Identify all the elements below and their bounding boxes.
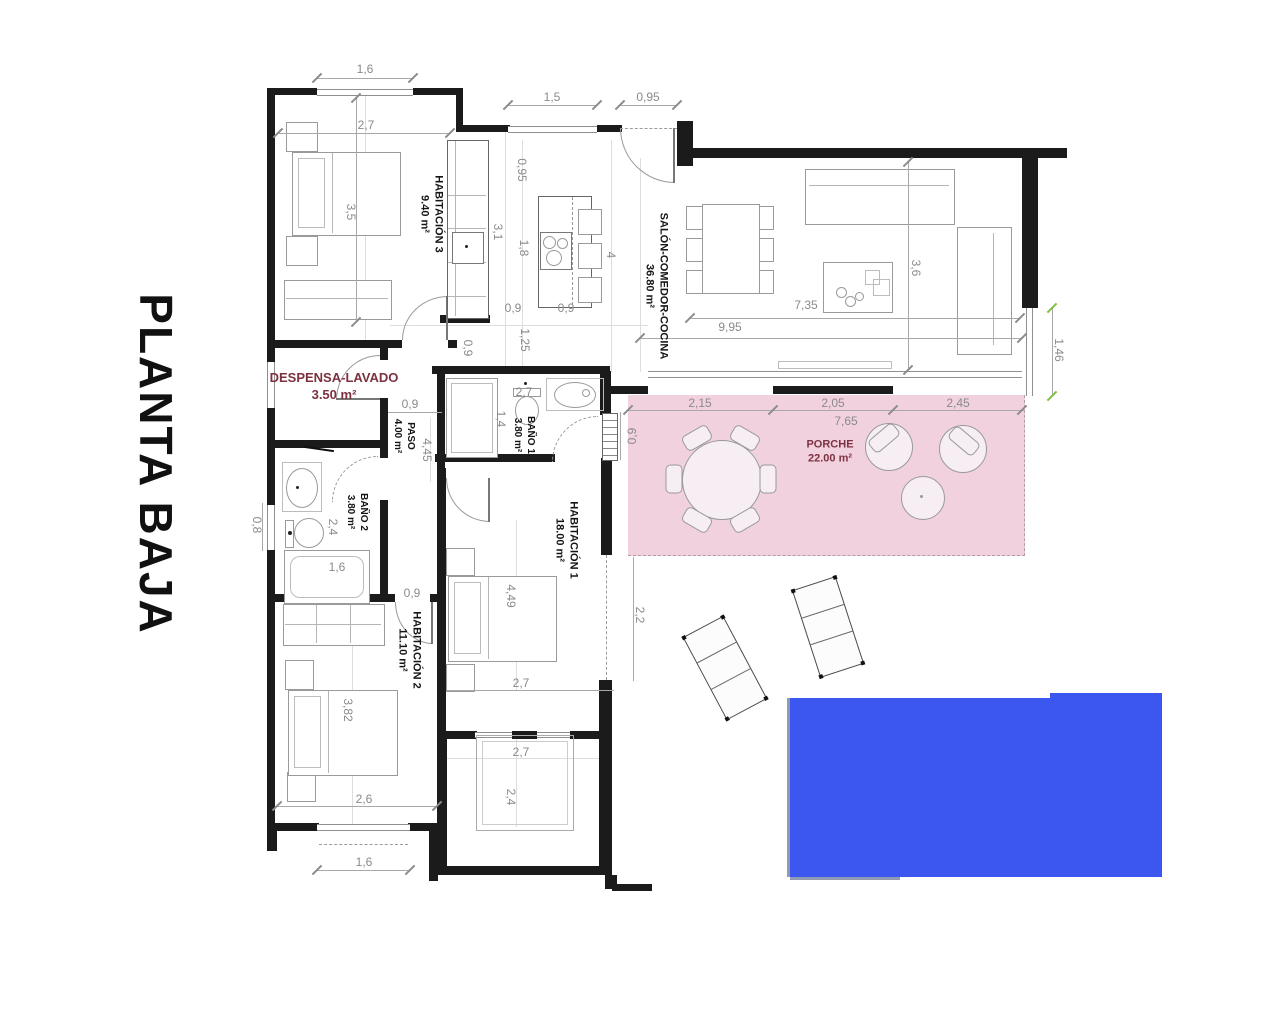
wall-segment: [612, 884, 652, 891]
dimension-label: 0,9: [558, 301, 575, 315]
room-area: 3.50 m²: [312, 387, 357, 402]
wall-segment: [601, 458, 612, 555]
lounger-line: [802, 604, 844, 619]
counter-line: [448, 228, 486, 229]
dining-table: [702, 204, 760, 294]
dimension-label: 2,7: [516, 385, 533, 399]
lounger-wheel: [791, 588, 796, 593]
kitchen-sink: [452, 232, 484, 264]
swimming-pool: [790, 698, 1162, 877]
dimension-label: 0,9: [461, 340, 475, 357]
wall-segment: [267, 550, 275, 833]
stool: [578, 243, 602, 269]
wardrobe-line: [285, 624, 381, 625]
pool-edge: [790, 877, 900, 880]
lounger-wheel: [720, 614, 725, 619]
sofa-line: [993, 233, 994, 345]
wall-segment: [597, 125, 622, 132]
dimension-label: 2,7: [358, 118, 375, 132]
wardrobe: [284, 280, 392, 320]
counter-line: [448, 296, 486, 297]
island-dashed-line: [572, 197, 573, 305]
burner: [557, 238, 568, 249]
room-label-hab2: HABITACIÓN 2 11.10 m²: [395, 611, 424, 688]
dim-line: [620, 105, 677, 106]
dimension-label: 0,9: [505, 301, 522, 315]
table-decor: [855, 292, 864, 301]
dim-line: [690, 318, 1020, 319]
bed-line: [332, 153, 333, 233]
porch-chair: [760, 465, 777, 494]
sun-lounger: [683, 616, 768, 721]
wall-segment: [437, 739, 447, 875]
wall-segment: [408, 823, 438, 831]
wardrobe: [283, 604, 385, 646]
room-label-paso: PASO 4.00 m²: [391, 419, 417, 453]
counter-line: [448, 195, 486, 196]
room-area: 3.80 m²: [345, 495, 356, 529]
lounger-wheel: [832, 575, 837, 580]
bed-line: [328, 691, 329, 773]
dim-line: [278, 133, 450, 134]
room-label-porche: PORCHE 22.00 m²: [806, 438, 853, 467]
dim-line: [628, 410, 1024, 411]
dimension-label: 3,1: [491, 224, 505, 241]
lounger-wheel: [818, 674, 823, 679]
dimension-label: 7,65: [834, 414, 857, 428]
dimension-label: 1,5: [544, 90, 561, 104]
sofa: [805, 169, 955, 225]
wall-segment: [437, 866, 609, 875]
pool-edge: [787, 698, 790, 877]
glass-wall: [648, 371, 1022, 378]
table-decor: [836, 287, 847, 298]
door-leaf: [488, 478, 490, 522]
window: [508, 126, 597, 133]
dim-line: [277, 806, 435, 807]
dimension-label: 0,8: [250, 517, 264, 534]
wall-segment: [599, 680, 612, 875]
window: [317, 89, 413, 96]
room-name: SALÓN-COMEDOR-COCINA: [657, 213, 669, 360]
burner: [543, 236, 556, 249]
dimension-label: 2,2: [633, 607, 647, 624]
window: [317, 824, 410, 831]
sink: [554, 382, 596, 408]
dimension-label: 4,45: [420, 438, 434, 461]
dimension-label: 0,9: [625, 428, 639, 445]
room-name: PORCHE: [806, 439, 853, 451]
lounger-line: [810, 631, 852, 646]
dim-line: [640, 338, 1022, 339]
lounger-wheel: [681, 635, 686, 640]
room-area: 3.80 m²: [512, 418, 523, 452]
door-leaf: [431, 602, 433, 644]
lounger-wheel: [724, 716, 729, 721]
wall-segment: [1022, 158, 1038, 308]
nightstand: [285, 660, 314, 690]
dim-line: [317, 78, 413, 79]
wall-segment: [693, 148, 1067, 158]
glass-wall: [1026, 308, 1033, 396]
dimension-label: 2,4: [504, 789, 518, 806]
dim-line: [317, 870, 410, 871]
sofa: [957, 227, 1012, 355]
dimension-label: 4,49: [504, 584, 518, 607]
wall-segment: [429, 831, 438, 881]
room-name: BAÑO 1: [525, 416, 536, 454]
faucet-dot: [465, 245, 468, 248]
table-dot: [920, 495, 923, 498]
dimension-label: 2,45: [946, 396, 969, 410]
room-label-despensa: DESPENSA-LAVADO 3.50 m²: [270, 370, 399, 404]
sun-lounger: [792, 576, 864, 678]
toilet-bowl: [294, 518, 324, 548]
dimension-label: 1,8: [517, 240, 531, 257]
dimension-label: 9,95: [718, 320, 741, 334]
room-area: 22.00 m²: [808, 453, 852, 465]
lounger-wheel: [763, 696, 768, 701]
dim-line: [446, 690, 614, 691]
dim-line: [388, 412, 442, 413]
dimension-label: 1,25: [518, 328, 532, 351]
dimension-label: 2,4: [326, 519, 340, 536]
room-name: HABITACIÓN 1: [567, 501, 579, 578]
dimension-label: 1,6: [356, 855, 373, 869]
opening-dashed: [319, 844, 408, 845]
table-decor: [873, 279, 890, 296]
stool: [578, 277, 602, 303]
room-name: BAÑO 2: [358, 493, 369, 531]
shower-tray: [451, 383, 493, 453]
side-table: [901, 476, 945, 520]
room-area: 11.10 m²: [396, 628, 408, 671]
dimension-label: 0,9: [402, 397, 419, 411]
dimension-label: 1,6: [329, 560, 346, 574]
nightstand: [286, 236, 318, 266]
pillow: [298, 158, 325, 228]
door-leaf: [673, 128, 675, 183]
wall-segment: [677, 121, 693, 166]
dim-line: [620, 412, 621, 460]
wall-segment: [380, 448, 388, 458]
wardrobe-line: [350, 605, 351, 643]
pillow: [454, 582, 481, 654]
nightstand: [287, 772, 316, 802]
lounger-line: [711, 668, 750, 690]
dimension-label: 2,15: [688, 396, 711, 410]
door-arc: [620, 128, 675, 183]
room-name: HABITACIÓN 3: [432, 175, 444, 252]
bathtub-inner: [290, 556, 364, 598]
wall-segment: [432, 366, 610, 374]
wall-segment: [268, 440, 388, 448]
dimension-label: 1,4: [494, 411, 508, 428]
centre-line: [505, 132, 506, 368]
opening-dashed: [606, 555, 607, 680]
lounger-line: [697, 642, 736, 664]
dim-line: [508, 105, 597, 106]
faucet: [582, 389, 590, 397]
dimension-label: 2,7: [513, 745, 530, 759]
nightstand: [446, 548, 475, 576]
wall-segment: [267, 88, 275, 362]
dimension-label: 0,9: [404, 586, 421, 600]
room-area: 4.00 m²: [392, 419, 403, 453]
room-name: DESPENSA-LAVADO: [270, 370, 399, 385]
wall-segment: [380, 348, 388, 360]
sliding-door-panel: [773, 386, 893, 394]
dimension-label: 7,35: [794, 298, 817, 312]
nightstand: [286, 122, 318, 152]
wall-segment: [448, 340, 457, 348]
wall-segment: [437, 731, 477, 739]
wall-segment: [275, 340, 402, 348]
wall-segment: [267, 408, 275, 507]
wardrobe-line: [316, 605, 317, 643]
wall-segment: [380, 500, 388, 598]
sliding-door-stack: [602, 413, 618, 461]
dimension-label: 0,95: [636, 90, 659, 104]
dimension-label: 3,6: [909, 260, 923, 277]
stool: [578, 209, 602, 235]
door-arc: [552, 416, 598, 462]
sofa-line: [809, 185, 949, 186]
dimension-label: 4: [604, 252, 618, 259]
pillow: [294, 696, 321, 768]
dimension-label: 2,6: [356, 792, 373, 806]
room-label-bano2: BAÑO 2 3.80 m²: [344, 493, 370, 531]
room-area: 18.00 m²: [553, 518, 565, 562]
wall-segment: [456, 125, 510, 132]
bed-line: [488, 577, 489, 659]
door-arc: [402, 296, 448, 340]
wall-segment: [600, 386, 648, 394]
kitchen-counter: [447, 140, 489, 319]
faucet-dot: [296, 486, 299, 489]
room-name: HABITACIÓN 2: [410, 611, 422, 688]
wall-segment: [437, 468, 446, 738]
burner: [546, 250, 562, 266]
room-label-bano1: BAÑO 1 3.80 m²: [511, 416, 537, 454]
room-name: PASO: [405, 422, 416, 450]
dimension-label: 1,46: [1052, 338, 1066, 361]
wardrobe-line: [286, 298, 388, 299]
room-area: 9.40 m²: [418, 195, 430, 233]
wall-segment: [267, 823, 277, 851]
window: [267, 505, 275, 550]
lounger-wheel: [860, 660, 865, 665]
room-label-hab3: HABITACIÓN 3 9.40 m²: [417, 175, 446, 252]
dimension-label: 0,95: [515, 158, 529, 181]
room-label-salon: SALÓN-COMEDOR-COCINA 36.80 m²: [642, 213, 671, 360]
plan-title: PLANTA BAJA: [129, 293, 183, 634]
dimension-label: 2,05: [821, 396, 844, 410]
toilet-dot: [288, 531, 292, 535]
dimension-label: 2,7: [513, 676, 530, 690]
dimension-label: 3,5: [344, 204, 358, 221]
dimension-label: 1,6: [357, 62, 374, 76]
room-label-hab1: HABITACIÓN 1 18.00 m²: [552, 501, 581, 578]
sink: [286, 468, 318, 508]
nightstand: [446, 664, 475, 692]
tv-bench: [778, 361, 892, 369]
door-arc: [446, 478, 490, 522]
dimension-label: 3,82: [341, 698, 355, 721]
floor-plan: PLANTA BAJA: [0, 0, 1280, 1024]
room-area: 36.80 m²: [643, 264, 655, 308]
porch-chair: [666, 465, 683, 494]
